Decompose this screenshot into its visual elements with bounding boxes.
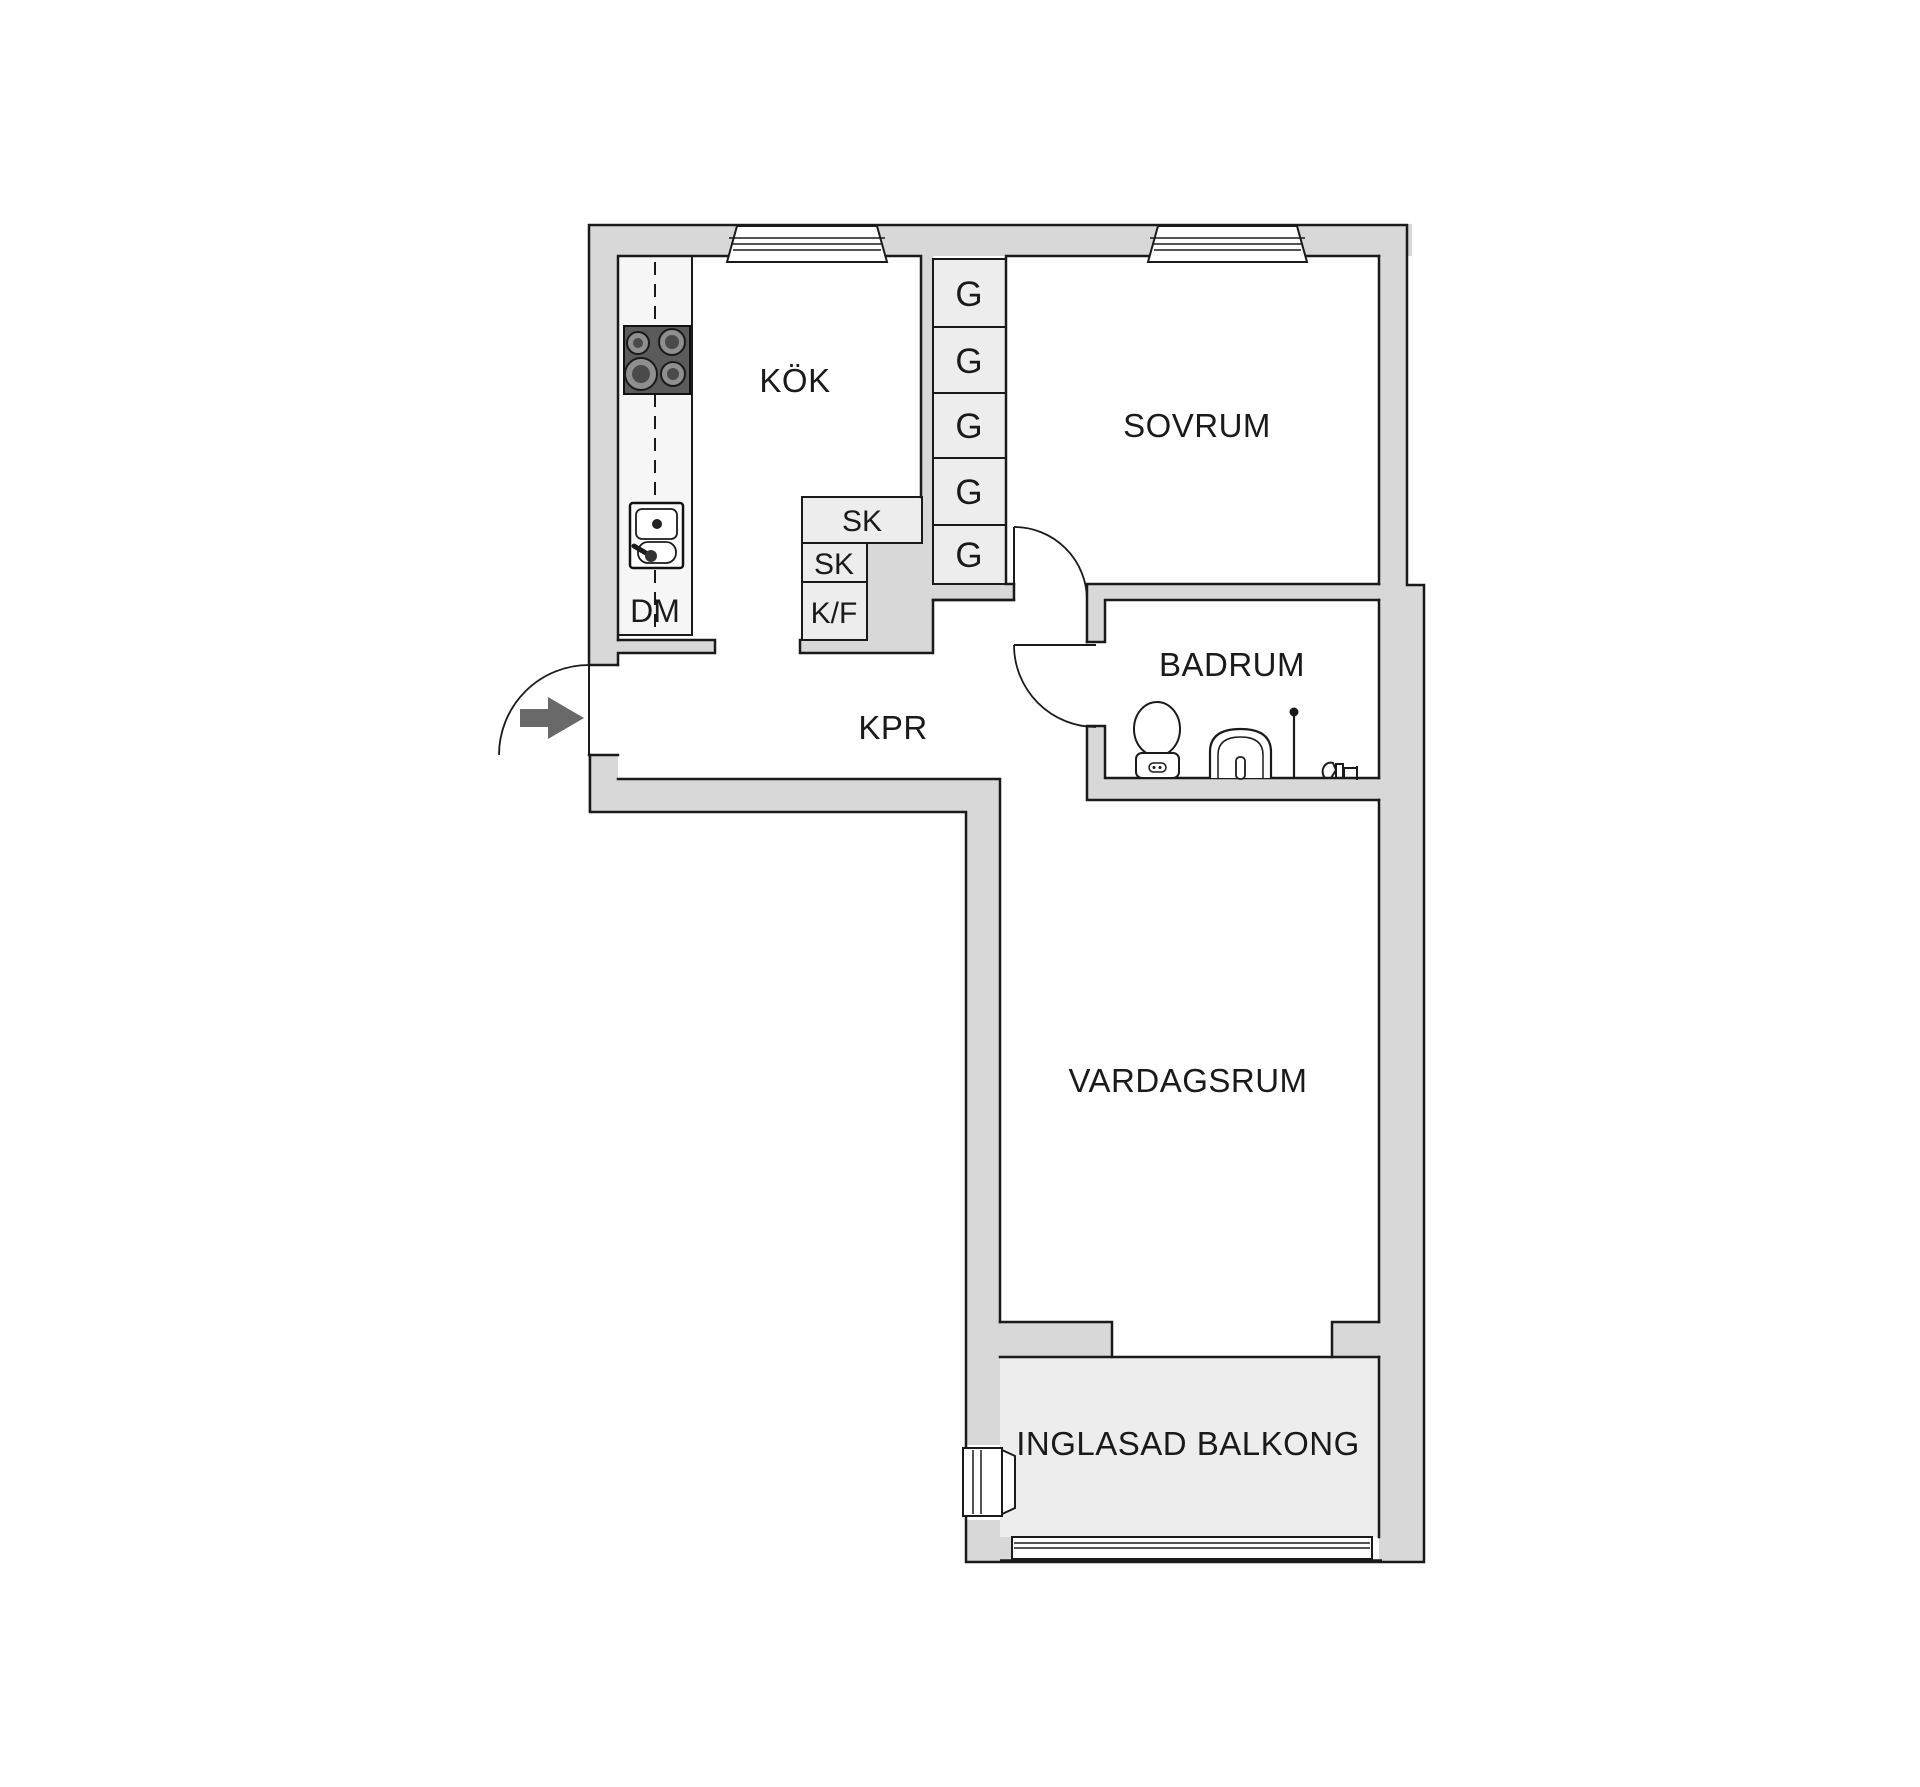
stove-icon [624,326,690,394]
floor-plan-drawing: KÖK SOVRUM BADRUM KPR VARDAGSRUM INGLASA… [0,0,1920,1787]
bathroom-fixtures [1134,702,1357,780]
closet-label-g-3: G [955,407,982,446]
bedroom-window-icon [1148,226,1307,262]
unit-label-kf: K/F [811,597,858,630]
wall-kitchen-south-stub-left [618,640,715,653]
kitchen-window-icon [727,226,887,262]
room-label-badrum: BADRUM [1159,646,1305,683]
closet-label-g-2: G [955,342,982,381]
shower-icon [1290,708,1299,779]
wall-closet-base [920,584,1014,600]
wall-livingroom-south-stub-left [992,1322,1112,1357]
room-label-balkong: INGLASAD BALKONG [1016,1425,1360,1462]
unit-label-sk-lower: SK [814,548,854,581]
bedroom-door-icon [1014,527,1087,600]
wall-kpr-south [588,779,1000,812]
entry-arrow-icon [520,697,584,739]
wall-livingroom-south-stub-right [1332,1322,1383,1357]
wall-right-upper [1379,224,1408,585]
unit-label-sk-upper: SK [842,505,882,538]
unit-label-dm: DM [630,593,680,629]
balcony-side-window-icon [963,1448,1015,1516]
balcony-glazing-icon [1000,1537,1382,1561]
wall-left-upper [588,224,618,665]
washbasin-icon [1210,729,1271,779]
room-label-vardagsrum: VARDAGSRUM [1068,1062,1307,1099]
room-label-kpr: KPR [858,709,927,746]
wall-badrum-west-upper [1087,584,1105,642]
closet-label-g-1: G [955,275,982,314]
wall-right-lower [1379,585,1425,1563]
sink-icon [630,503,683,568]
wall-badrum-south [1087,778,1379,800]
bathroom-door-icon [1014,645,1096,727]
closet-label-g-5: G [955,536,982,575]
wall-kitchen-south-stub-right [800,640,933,653]
toilet-icon [1134,702,1180,778]
floor-plan-page: KÖK SOVRUM BADRUM KPR VARDAGSRUM INGLASA… [0,0,1920,1787]
room-label-sovrum: SOVRUM [1123,407,1271,444]
room-label-kok: KÖK [759,362,830,399]
kitchen-units [618,256,692,635]
wall-bedroom-south [1087,584,1379,600]
closet-label-g-4: G [955,473,982,512]
